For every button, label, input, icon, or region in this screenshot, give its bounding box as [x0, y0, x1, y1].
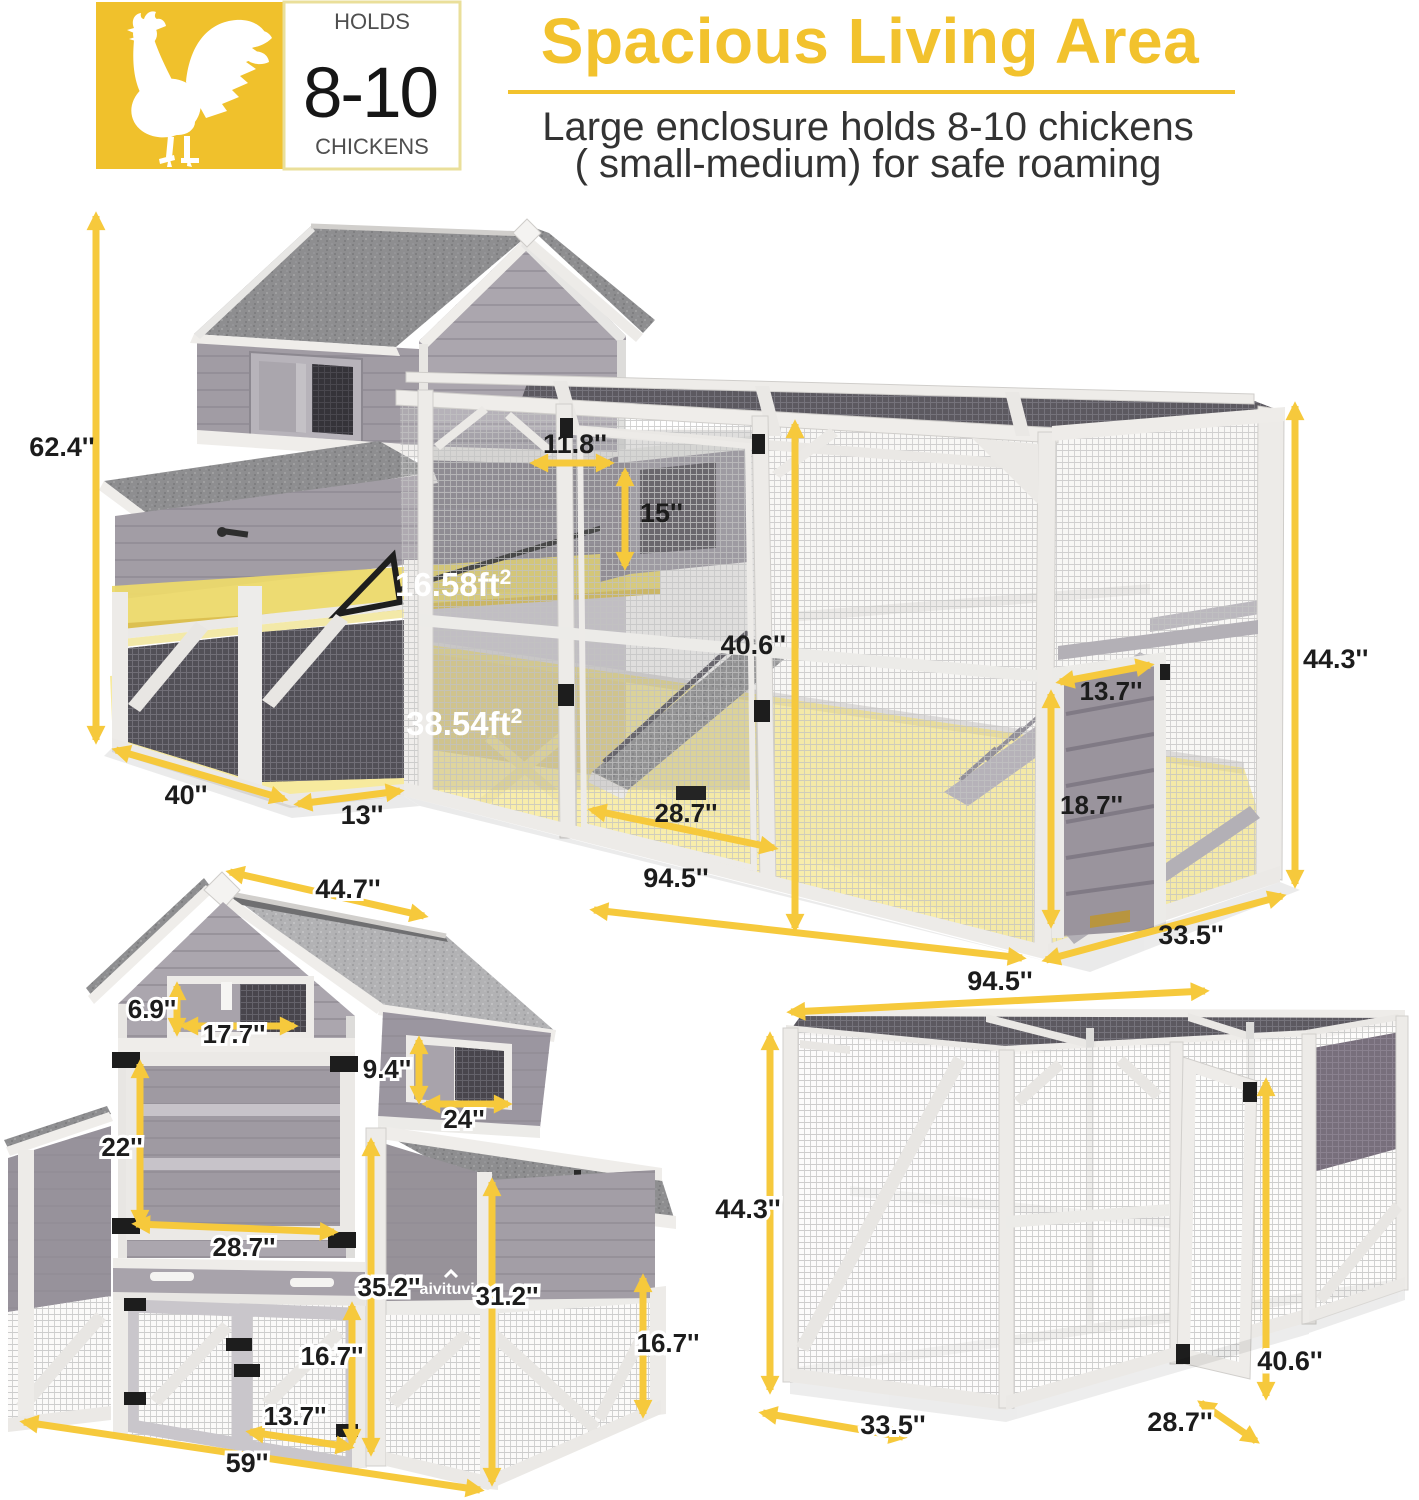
svg-text:40.6'': 40.6'': [721, 630, 786, 660]
svg-text:40'': 40'': [165, 780, 208, 810]
svg-text:28.7'': 28.7'': [655, 798, 718, 828]
svg-text:9.4'': 9.4'': [363, 1054, 412, 1084]
svg-text:28.7'': 28.7'': [1147, 1407, 1212, 1437]
svg-text:24'': 24'': [443, 1104, 484, 1134]
svg-text:16.58ft2: 16.58ft2: [395, 566, 511, 603]
svg-text:62.4'': 62.4'': [29, 432, 94, 462]
svg-text:44.7'': 44.7'': [315, 874, 380, 904]
svg-text:44.3'': 44.3'': [715, 1194, 780, 1224]
svg-text:HOLDS: HOLDS: [334, 9, 410, 34]
svg-text:13.7'': 13.7'': [264, 1401, 327, 1431]
svg-text:6.9'': 6.9'': [128, 994, 177, 1024]
svg-text:31.2'': 31.2'': [476, 1281, 539, 1311]
svg-text:16.7'': 16.7'': [637, 1328, 700, 1358]
svg-text:40.6'': 40.6'': [1257, 1346, 1322, 1376]
svg-text:( small-medium) for safe roami: ( small-medium) for safe roaming: [575, 142, 1162, 186]
svg-text:17.7'': 17.7'': [203, 1019, 266, 1049]
svg-text:Spacious Living Area: Spacious Living Area: [541, 5, 1199, 77]
svg-text:8-10: 8-10: [303, 54, 437, 133]
svg-text:16.7'': 16.7'': [301, 1341, 364, 1371]
svg-text:35.2'': 35.2'': [358, 1272, 421, 1302]
svg-text:94.5'': 94.5'': [643, 863, 708, 893]
svg-text:CHICKENS: CHICKENS: [315, 134, 429, 159]
svg-text:44.3'': 44.3'': [1303, 644, 1368, 674]
svg-text:13.7'': 13.7'': [1080, 676, 1143, 706]
svg-text:33.5'': 33.5'': [860, 1410, 925, 1440]
svg-text:33.5'': 33.5'': [1158, 920, 1223, 950]
svg-text:22'': 22'': [101, 1132, 142, 1162]
svg-text:94.5'': 94.5'': [967, 966, 1032, 996]
svg-text:18.7'': 18.7'': [1060, 790, 1123, 820]
svg-text:59'': 59'': [226, 1448, 269, 1478]
svg-text:11.8'': 11.8'': [543, 429, 607, 459]
svg-text:13'': 13'': [341, 800, 384, 830]
svg-text:15'': 15'': [640, 498, 683, 528]
svg-text:38.54ft2: 38.54ft2: [406, 705, 522, 742]
svg-text:28.7'': 28.7'': [213, 1232, 276, 1262]
